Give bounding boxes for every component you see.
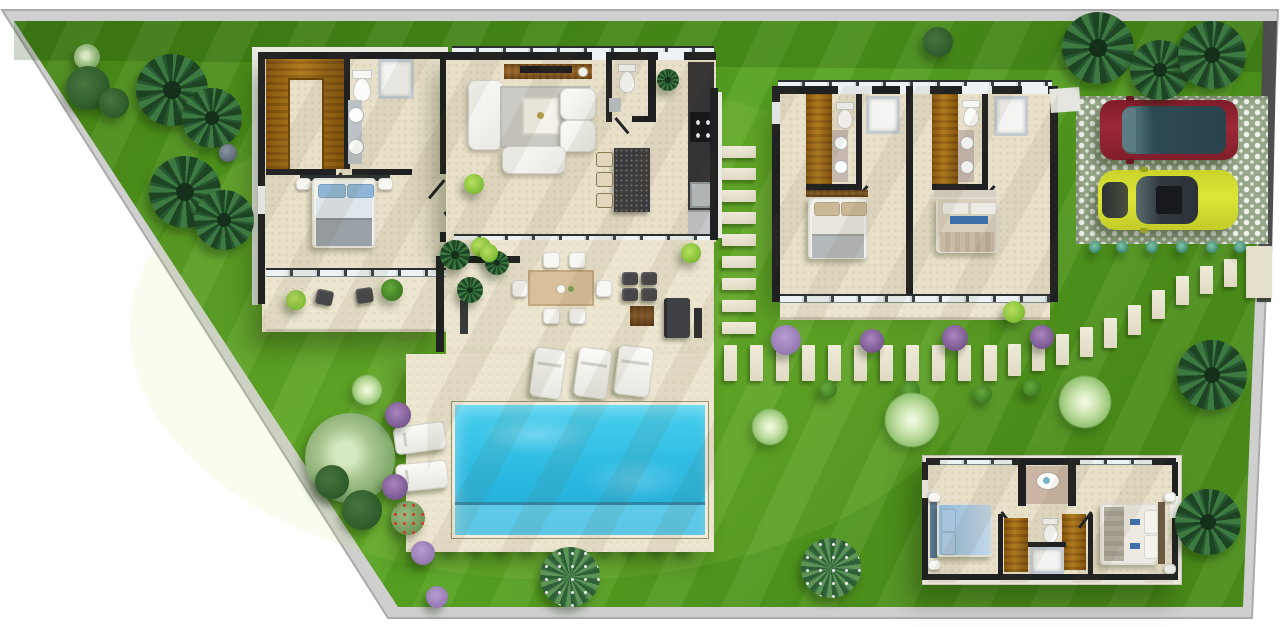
console-decor xyxy=(578,67,588,77)
guest-bedR-blue-accent2 xyxy=(1130,543,1140,549)
dining-plant-decor xyxy=(568,286,574,292)
lounge-pouf-4 xyxy=(641,288,657,301)
living-top-window-2 xyxy=(658,52,684,60)
master-shower xyxy=(378,59,414,99)
stepping-stone xyxy=(722,234,756,246)
kitchen-stool-2 xyxy=(596,172,613,187)
loveseat xyxy=(502,146,566,174)
pool-shallow-shelf xyxy=(455,502,705,535)
dining-chair-4 xyxy=(569,308,586,324)
armchair-1 xyxy=(560,88,596,120)
suite2-bed xyxy=(936,197,998,253)
suv-windshield xyxy=(1122,108,1136,152)
bedwing-top-window-2 xyxy=(900,86,930,94)
entry-walkway xyxy=(1246,246,1272,298)
kitchen-sink xyxy=(690,182,712,208)
guest-toilet-bowl xyxy=(1043,524,1058,543)
master-nightstand-right xyxy=(378,178,393,190)
master-pillow-right xyxy=(347,184,374,198)
dining-table xyxy=(528,270,594,306)
master-left-window xyxy=(258,186,265,214)
sofa-sectional xyxy=(468,80,504,150)
sun-lounger-3 xyxy=(613,344,655,398)
stepping-stone xyxy=(750,345,763,381)
stepping-stone xyxy=(722,212,756,224)
stepping-stone xyxy=(1056,334,1069,365)
stepping-stone xyxy=(722,278,756,290)
closet-inner-floor xyxy=(288,78,324,169)
red-suv xyxy=(1100,100,1238,160)
suite1-sink-1 xyxy=(834,136,848,150)
patio-corner-wall-h xyxy=(436,256,520,263)
swimming-pool xyxy=(452,402,708,538)
sportscar-mirror-bottom xyxy=(1140,228,1148,233)
wall-bedwing-middle xyxy=(906,86,913,302)
stepping-stone xyxy=(722,168,756,180)
master-bed-sheet xyxy=(316,198,372,218)
suite2-shower xyxy=(994,96,1028,136)
stepping-stone xyxy=(1200,266,1213,294)
stepping-stone xyxy=(1224,259,1237,287)
master-pillow-left xyxy=(318,184,346,198)
suite2-blanket xyxy=(940,232,994,252)
bedwing-top-window-1 xyxy=(838,86,872,94)
sportscar-mirror-top xyxy=(1140,167,1148,172)
stepping-stone xyxy=(1176,276,1189,305)
pool-ripple xyxy=(580,457,693,503)
lounge-pouf-3 xyxy=(622,288,638,301)
guest-bedL-pillow xyxy=(941,509,956,532)
stepping-stone xyxy=(1104,318,1117,348)
guest-bedR-nightstand-1 xyxy=(1164,492,1176,502)
guest-alcove-wall-l xyxy=(1018,460,1026,506)
terrace-bush-1 xyxy=(286,290,306,310)
armchair-2 xyxy=(560,120,596,152)
master-bed-blanket xyxy=(316,218,372,246)
wc-toilet-bowl xyxy=(619,71,635,93)
guest-bed-left xyxy=(937,503,993,557)
terrace-pouf-2 xyxy=(355,287,374,304)
suv-mirror-bottom xyxy=(1126,159,1134,164)
master-toilet-bowl xyxy=(353,78,371,102)
wc-sink xyxy=(609,98,621,112)
master-sliding-door xyxy=(266,268,446,277)
kitchen-stool-3 xyxy=(596,193,613,208)
wall-bedwing-right xyxy=(1050,86,1058,302)
dining-chair-3 xyxy=(543,308,560,324)
coffee-table-decor xyxy=(537,112,544,119)
dining-chair-5 xyxy=(512,280,528,297)
site-plan-scene xyxy=(0,0,1280,627)
bedwing-top-window-3 xyxy=(962,86,992,94)
suite1-pillow-1 xyxy=(814,202,840,216)
wall-master-top xyxy=(258,52,448,59)
outdoor-sofa xyxy=(664,298,690,338)
stepping-stone xyxy=(1008,344,1021,376)
master-sink-1 xyxy=(348,107,364,123)
stepping-stone xyxy=(1080,327,1093,357)
suite2-wardrobe xyxy=(932,94,958,186)
stepping-stone xyxy=(828,345,841,381)
suite1-toilet-bowl xyxy=(837,109,853,129)
guest-bedR-pillow xyxy=(1144,510,1158,534)
suite2-blue-runner xyxy=(950,216,988,224)
terrace-bush-2 xyxy=(381,279,403,301)
bedwing-left-window xyxy=(772,102,780,124)
bedwing-sliding-door xyxy=(780,294,1050,303)
bedwing-top-window-4 xyxy=(1022,86,1048,94)
sportscar-sunroof xyxy=(1156,186,1182,214)
suite2-headboard xyxy=(934,190,996,197)
kitchen-island xyxy=(614,148,650,212)
stepping-stone xyxy=(802,345,815,381)
stepping-stone xyxy=(906,345,919,381)
master-sink-2 xyxy=(348,139,364,155)
suite1-bed xyxy=(808,197,868,259)
suite1-blanket xyxy=(812,234,864,258)
guest-basin-drain xyxy=(1043,477,1050,484)
suite2-pillow-2 xyxy=(970,202,997,215)
sun-lounger-2 xyxy=(573,346,614,400)
terrace-pouf-1 xyxy=(315,288,335,306)
master-bed xyxy=(312,178,376,248)
guest-bedR-blanket xyxy=(1104,507,1124,561)
wc-wall-bottom xyxy=(632,116,656,122)
suite2-sink-1 xyxy=(960,136,974,150)
stepping-stone xyxy=(958,345,971,381)
wall-kitchen-right xyxy=(710,88,718,240)
guest-bedR-nightstand-2 xyxy=(1164,564,1176,574)
patio-corner-wall-v xyxy=(436,256,444,352)
dining-chair-6 xyxy=(596,280,612,297)
kitchen-stool-1 xyxy=(596,152,613,167)
roof-corner-piece xyxy=(1049,87,1081,113)
stepping-stone xyxy=(776,345,789,381)
dining-chair-1 xyxy=(543,252,560,268)
driveway-pavers xyxy=(1076,96,1268,244)
suite1-sheet xyxy=(812,216,864,234)
lounge-pouf-2 xyxy=(641,272,657,285)
guest-wardrobe-left xyxy=(1004,518,1028,572)
stepping-stone xyxy=(722,322,756,334)
stepping-stone xyxy=(722,146,756,158)
suite1-shower xyxy=(866,96,900,134)
master-nightstand-left xyxy=(296,178,311,190)
dining-tableware xyxy=(556,284,566,294)
cooktop xyxy=(690,112,712,142)
sportscar-hood-vents xyxy=(1102,182,1128,218)
suite1-wardrobe xyxy=(806,94,832,186)
dining-chair-2 xyxy=(569,252,586,268)
stepping-stone xyxy=(880,345,893,381)
guest-alcove-wall-r xyxy=(1068,460,1076,506)
guest-bed-right xyxy=(1100,503,1158,565)
wall-master-left xyxy=(258,52,265,304)
stepping-stone xyxy=(722,300,756,312)
pool-ripple xyxy=(480,415,593,454)
guest-bedR-blue-accent xyxy=(1130,519,1140,525)
yellow-sports-car xyxy=(1098,170,1238,230)
guest-wall-bottom xyxy=(922,574,1178,580)
guest-wall-right xyxy=(1172,462,1178,580)
stepping-stone xyxy=(724,345,737,381)
stepping-stone xyxy=(1152,290,1165,319)
guest-bedR-headboard xyxy=(1158,502,1165,564)
wc-wall-right xyxy=(648,52,656,122)
suite1-headboard xyxy=(806,190,868,197)
patio-bench xyxy=(460,300,468,334)
tv-screen xyxy=(520,66,572,73)
guest-div-wall-1 xyxy=(998,514,1003,576)
suite2-sink-2 xyxy=(960,160,974,174)
suite2-bath-wall-v xyxy=(982,94,988,186)
guest-window-strip-2 xyxy=(1080,459,1152,465)
suv-mirror-top xyxy=(1126,96,1134,101)
suite2-toilet-bowl xyxy=(963,107,979,127)
sun-lounger-5 xyxy=(395,459,450,492)
stepping-stone xyxy=(1128,305,1141,335)
roof-trim-kitchen-right xyxy=(718,92,722,238)
guest-bedL-headboard xyxy=(930,502,937,558)
guest-div-wall-2 xyxy=(1088,514,1093,576)
stepping-stone xyxy=(1032,340,1045,371)
guest-shower xyxy=(1030,547,1064,574)
suite1-pillow-2 xyxy=(841,202,867,216)
guest-window-strip-1 xyxy=(940,459,1012,465)
suite1-bath-wall-v xyxy=(856,94,862,186)
stepping-stone xyxy=(984,345,997,381)
suite1-sink-2 xyxy=(834,160,848,174)
lounge-coffee-table xyxy=(630,306,654,326)
stepping-stone xyxy=(722,190,756,202)
outdoor-side-table xyxy=(694,308,702,338)
guest-bedL-pillow2 xyxy=(941,532,956,555)
bedwing-terrace xyxy=(780,303,1050,320)
guest-bedL-nightstand-1 xyxy=(928,492,941,502)
guest-bedL-nightstand-2 xyxy=(928,560,941,570)
lounge-pouf-1 xyxy=(622,272,638,285)
stepping-stone xyxy=(722,256,756,268)
suv-glass-roof xyxy=(1122,106,1226,154)
stepping-stone xyxy=(932,345,945,381)
suite2-pillow-1 xyxy=(942,202,969,215)
stepping-stone xyxy=(854,345,867,381)
guest-bedR-pillow2 xyxy=(1144,535,1158,559)
